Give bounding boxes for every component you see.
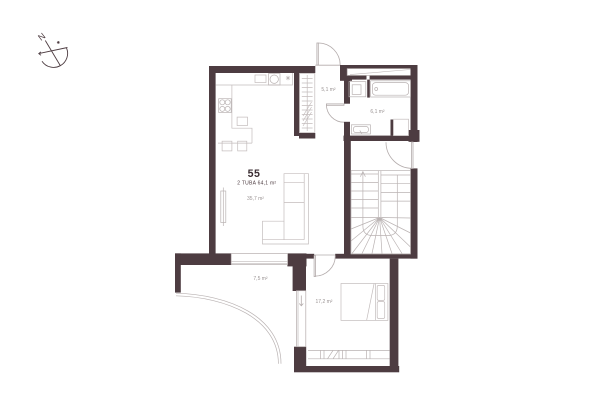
svg-text:7,5 m²: 7,5 m²: [253, 276, 268, 282]
svg-text:35,7 m²: 35,7 m²: [247, 196, 264, 202]
svg-text:6,1 m²: 6,1 m²: [370, 109, 385, 115]
svg-text:2 TUBA 64,1 m²: 2 TUBA 64,1 m²: [237, 181, 276, 187]
svg-text:17,2 m²: 17,2 m²: [316, 299, 333, 305]
svg-text:55: 55: [248, 168, 261, 180]
svg-text:5,1 m²: 5,1 m²: [321, 87, 336, 93]
